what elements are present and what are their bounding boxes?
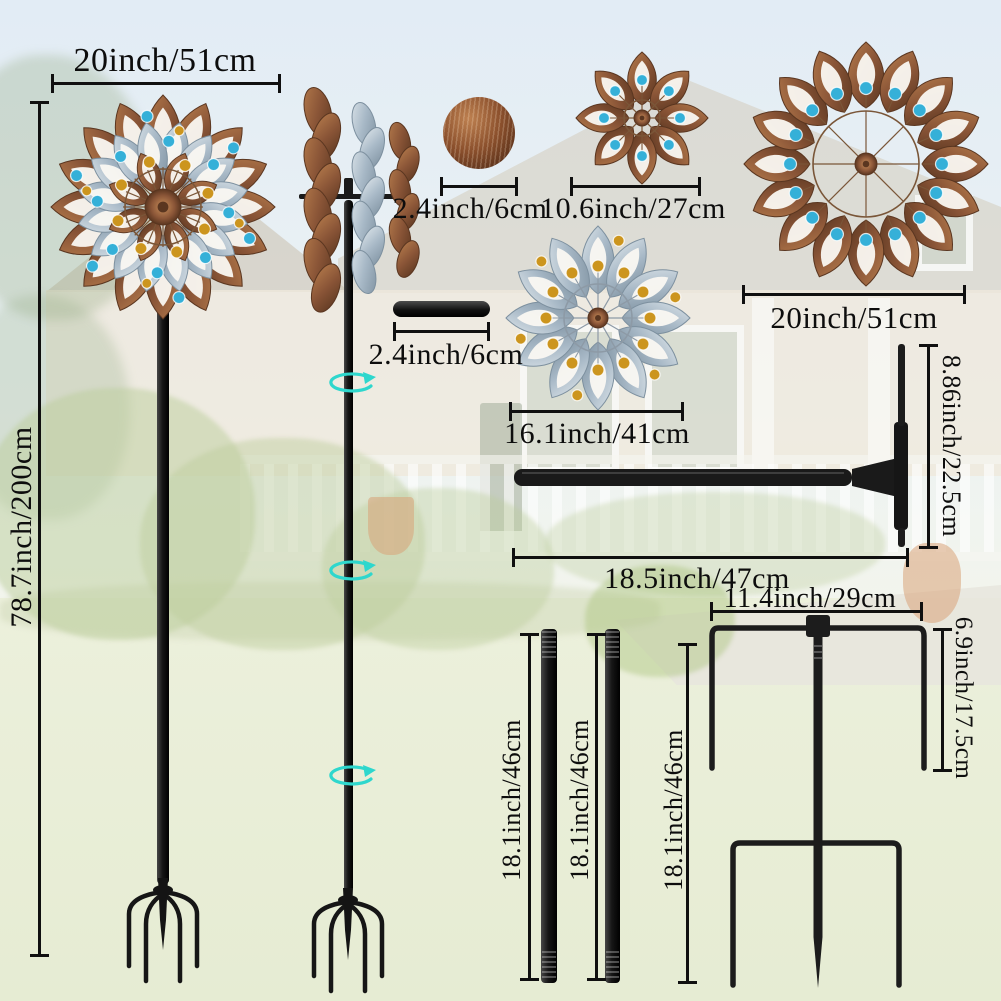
ground-stake-assembly [688, 606, 948, 996]
dim-line-medium-spinner [509, 410, 684, 413]
dim-line-ball-cap [440, 185, 518, 188]
pole-section-1 [541, 629, 557, 983]
dim-line-small-flower [570, 185, 701, 188]
dim-line-large-spinner [742, 293, 966, 296]
dim-line-connector [393, 330, 490, 333]
spinner2-ground-stake [288, 888, 408, 998]
dim-line-tbar-length [512, 556, 909, 559]
dim-label-prong-height: 6.9inch/17.5cm [949, 617, 977, 780]
dim-line-prong-height [941, 628, 944, 772]
dim-label-tbar-height: 8.86inch/22.5cm [936, 355, 966, 537]
dim-label-pole1: 18.1inch/46cm [497, 719, 527, 881]
flower-pot [368, 497, 414, 555]
dim-label-small-flower: 10.6inch/27cm [540, 192, 726, 226]
spinner1-ground-stake [103, 878, 223, 988]
dim-line-pole2 [595, 633, 598, 981]
dim-line-tbar-height [927, 344, 930, 549]
dim-label-stake-width: 11.4inch/29cm [724, 583, 897, 615]
dim-label-total-height: 78.7inch/200cm [5, 426, 39, 627]
dim-label-pole2: 18.1inch/46cm [565, 719, 595, 881]
dim-label-connector: 2.4inch/6cm [369, 338, 524, 372]
wind-spinner-front-view [40, 85, 286, 331]
dim-label-medium-spinner: 16.1inch/41cm [504, 417, 690, 451]
pole-section-2 [605, 629, 620, 983]
spinner1-pole [157, 250, 169, 884]
finial-ball-cap [443, 97, 515, 169]
dim-line-pole1 [528, 633, 531, 981]
dim-label-large-spinner: 20inch/51cm [770, 300, 937, 336]
large-spinner-wheel [734, 32, 998, 296]
rotation-arrow-icon [324, 372, 376, 398]
rotation-arrow-icon [324, 765, 376, 791]
connector-tube [393, 301, 490, 317]
wind-spinner-dimension-diagram: 20inch/51cm 78.7inch/200cm 2.4inch/6cm 1… [0, 0, 1001, 1001]
dim-label-stake-height: 18.1inch/46cm [659, 729, 689, 891]
small-flower-spinner [566, 42, 718, 194]
dim-line-total-width [51, 82, 281, 85]
rotation-arrow-icon [324, 560, 376, 586]
dim-label-total-width: 20inch/51cm [73, 42, 256, 80]
dim-label-ball-cap: 2.4inch/6cm [393, 192, 548, 226]
